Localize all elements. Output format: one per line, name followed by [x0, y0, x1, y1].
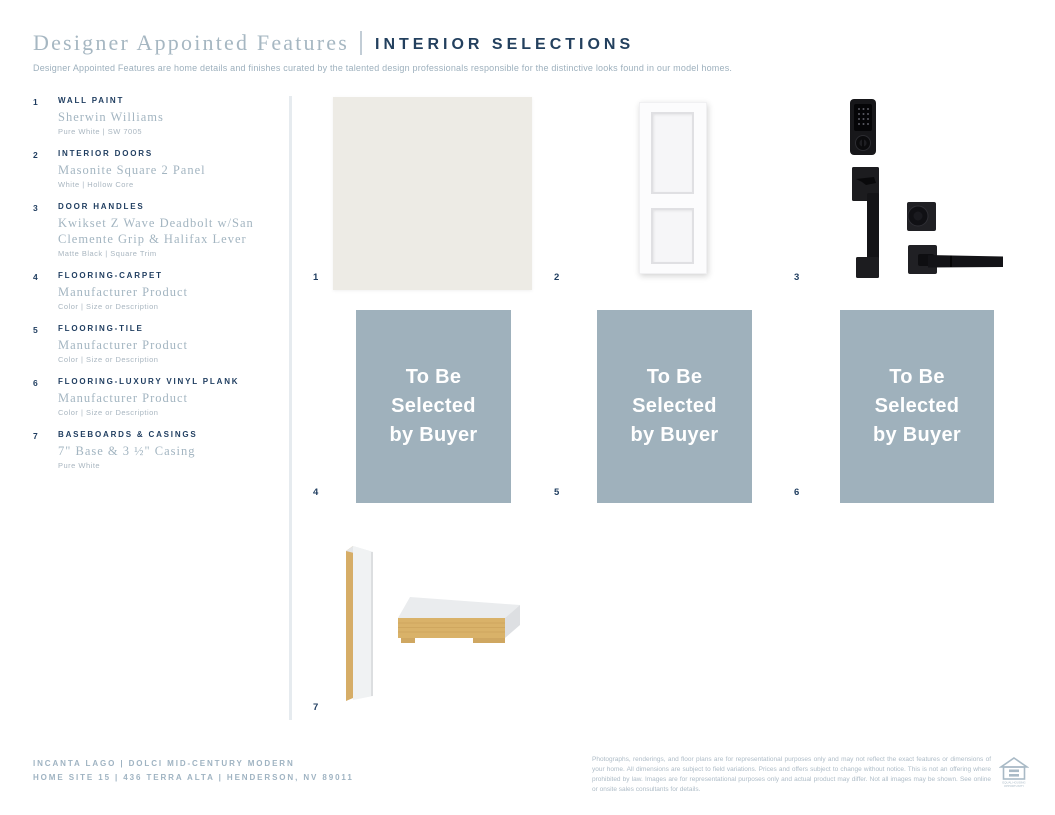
- image-number-4: 4: [313, 487, 318, 498]
- item-detail: Color | Size or Description: [58, 355, 278, 364]
- item-number: 1: [33, 96, 58, 136]
- image-number-7: 7: [313, 702, 318, 713]
- list-item: 1 WALL PAINT Sherwin Williams Pure White…: [33, 96, 278, 136]
- image-number-1: 1: [313, 272, 318, 283]
- placeholder-line: by Buyer: [390, 421, 478, 450]
- item-product-name: Manufacturer Product: [58, 337, 278, 353]
- item-heading: FLOORING-TILE: [58, 324, 278, 333]
- placeholder-line: Selected: [391, 392, 476, 421]
- item-product-name: 7" Base & 3 ½" Casing: [58, 443, 278, 459]
- community-line: INCANTA LAGO | DOLCI MID-CENTURY MODERN: [33, 757, 354, 771]
- equal-housing-opportunity-icon: EQUAL HOUSING OPPORTUNITY: [999, 756, 1029, 788]
- item-number: 6: [33, 377, 58, 417]
- placeholder-line: To Be: [647, 363, 703, 392]
- address-line: HOME SITE 15 | 436 TERRA ALTA | HENDERSO…: [33, 771, 354, 785]
- placeholder-box-lvp: To Be Selected by Buyer: [840, 310, 994, 503]
- placeholder-line: Selected: [632, 392, 717, 421]
- item-number: 3: [33, 202, 58, 258]
- placeholder-line: by Buyer: [873, 421, 961, 450]
- item-heading: FLOORING-LUXURY VINYL PLANK: [58, 377, 278, 386]
- baseboard-casing-image: [333, 540, 532, 705]
- item-product-name: Sherwin Williams: [58, 109, 278, 125]
- item-heading: FLOORING-CARPET: [58, 271, 278, 280]
- legal-disclaimer: Photographs, renderings, and floor plans…: [592, 755, 991, 795]
- list-item: 4 FLOORING-CARPET Manufacturer Product C…: [33, 271, 278, 311]
- baseboard-casing-illustration: [333, 540, 532, 705]
- item-number: 2: [33, 149, 58, 189]
- door-panel-bottom: [651, 208, 694, 264]
- item-product-name: Kwikset Z Wave Deadbolt w/San Clemente G…: [58, 215, 278, 247]
- title-divider-bar: [360, 31, 362, 55]
- list-item: 6 FLOORING-LUXURY VINYL PLANK Manufactur…: [33, 377, 278, 417]
- item-detail: Pure White: [58, 461, 278, 470]
- placeholder-line: To Be: [406, 363, 462, 392]
- item-heading: WALL PAINT: [58, 96, 278, 105]
- designer-features-sheet: Designer Appointed Features INTERIOR SEL…: [0, 0, 1055, 815]
- page-title: Designer Appointed Features INTERIOR SEL…: [33, 30, 1023, 56]
- item-number: 7: [33, 430, 58, 470]
- item-number: 5: [33, 324, 58, 364]
- header: Designer Appointed Features INTERIOR SEL…: [33, 30, 1023, 73]
- door-panel-top: [651, 112, 694, 194]
- item-detail: White | Hollow Core: [58, 180, 278, 189]
- placeholder-line: To Be: [889, 363, 945, 392]
- list-item: 5 FLOORING-TILE Manufacturer Product Col…: [33, 324, 278, 364]
- door-hardware-image: [814, 97, 1013, 290]
- page-subtitle: Designer Appointed Features are home det…: [33, 63, 1023, 73]
- interior-door-image: [574, 97, 772, 290]
- feature-list: 1 WALL PAINT Sherwin Williams Pure White…: [33, 96, 278, 483]
- placeholder-box-carpet: To Be Selected by Buyer: [356, 310, 511, 503]
- item-product-name: Manufacturer Product: [58, 390, 278, 406]
- item-detail: Color | Size or Description: [58, 302, 278, 311]
- item-detail: Matte Black | Square Trim: [58, 249, 278, 258]
- footer-community-info: INCANTA LAGO | DOLCI MID-CENTURY MODERN …: [33, 757, 354, 785]
- two-panel-door: [639, 102, 707, 274]
- placeholder-line: by Buyer: [631, 421, 719, 450]
- placeholder-box-tile: To Be Selected by Buyer: [597, 310, 752, 503]
- item-detail: Pure White | SW 7005: [58, 127, 278, 136]
- title-serif: Designer Appointed Features: [33, 30, 349, 56]
- item-number: 4: [33, 271, 58, 311]
- vertical-divider: [289, 96, 292, 720]
- item-heading: BASEBOARDS & CASINGS: [58, 430, 278, 439]
- image-number-2: 2: [554, 272, 559, 283]
- item-heading: DOOR HANDLES: [58, 202, 278, 211]
- item-product-name: Masonite Square 2 Panel: [58, 162, 278, 178]
- image-number-6: 6: [794, 487, 799, 498]
- list-item: 2 INTERIOR DOORS Masonite Square 2 Panel…: [33, 149, 278, 189]
- image-number-5: 5: [554, 487, 559, 498]
- item-product-name: Manufacturer Product: [58, 284, 278, 300]
- item-detail: Color | Size or Description: [58, 408, 278, 417]
- placeholder-line: Selected: [875, 392, 960, 421]
- matte-black-hardware-illustration: [814, 97, 1013, 290]
- paint-swatch-image: [333, 97, 532, 290]
- image-number-3: 3: [794, 272, 799, 283]
- logo-text-line2: OPPORTUNITY: [1004, 784, 1024, 788]
- list-item: 7 BASEBOARDS & CASINGS 7" Base & 3 ½" Ca…: [33, 430, 278, 470]
- item-heading: INTERIOR DOORS: [58, 149, 278, 158]
- list-item: 3 DOOR HANDLES Kwikset Z Wave Deadbolt w…: [33, 202, 278, 258]
- title-section: INTERIOR SELECTIONS: [375, 33, 634, 54]
